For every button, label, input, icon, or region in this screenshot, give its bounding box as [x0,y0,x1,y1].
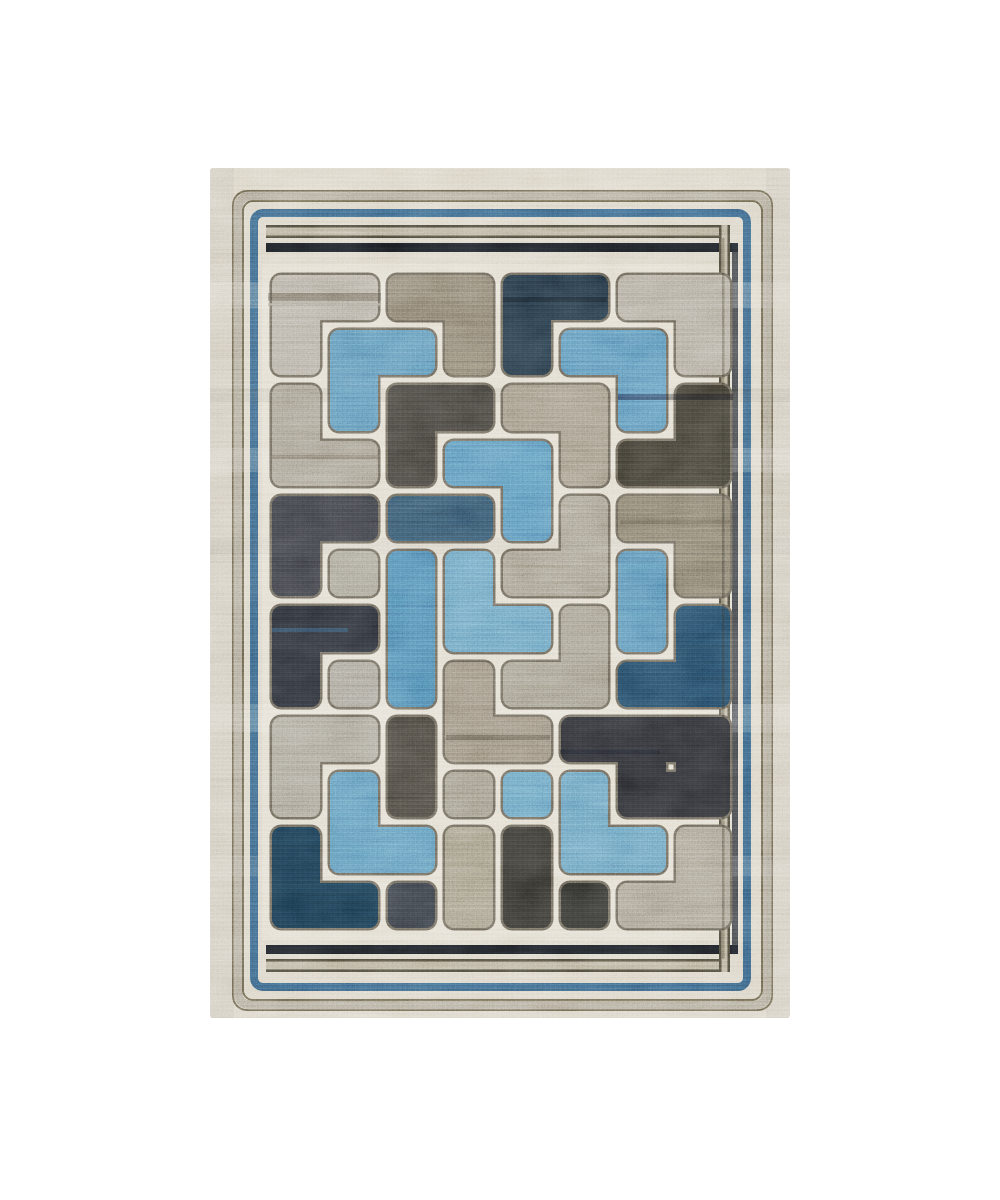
rug-photo [0,0,1000,1200]
rug-image [0,0,1000,1200]
noise-overlays [210,168,790,1018]
